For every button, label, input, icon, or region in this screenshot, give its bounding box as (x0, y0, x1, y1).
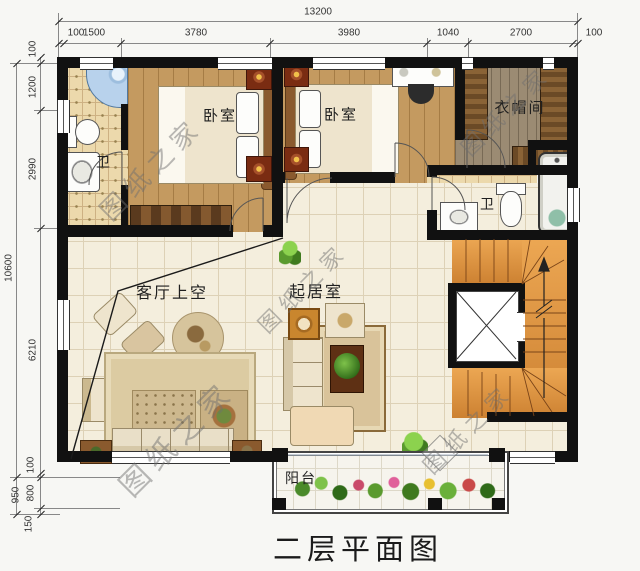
room-label-bedroom-right: 卧室 (324, 104, 358, 125)
floor-plan-sheet: 13200 100 1500 3780 3980 1040 2700 100 1… (0, 0, 640, 571)
stair-treads (466, 239, 566, 416)
elevator-x-icon (457, 292, 516, 359)
room-label-bathroom-right: 卫 (480, 194, 496, 214)
room-label-sitting-room: 起居室 (289, 278, 343, 302)
room-label-bathroom-left: 卫 (96, 152, 112, 172)
room-label-living-void: 客厅上空 (136, 279, 208, 303)
stair-direction-arrow-icon (536, 258, 552, 398)
room-label-balcony: 阳台 (285, 468, 317, 488)
room-label-bedroom-left: 卧室 (203, 105, 237, 126)
room-label-cloakroom: 衣帽间 (494, 97, 545, 118)
page-title: 二层平面图 (273, 526, 443, 568)
